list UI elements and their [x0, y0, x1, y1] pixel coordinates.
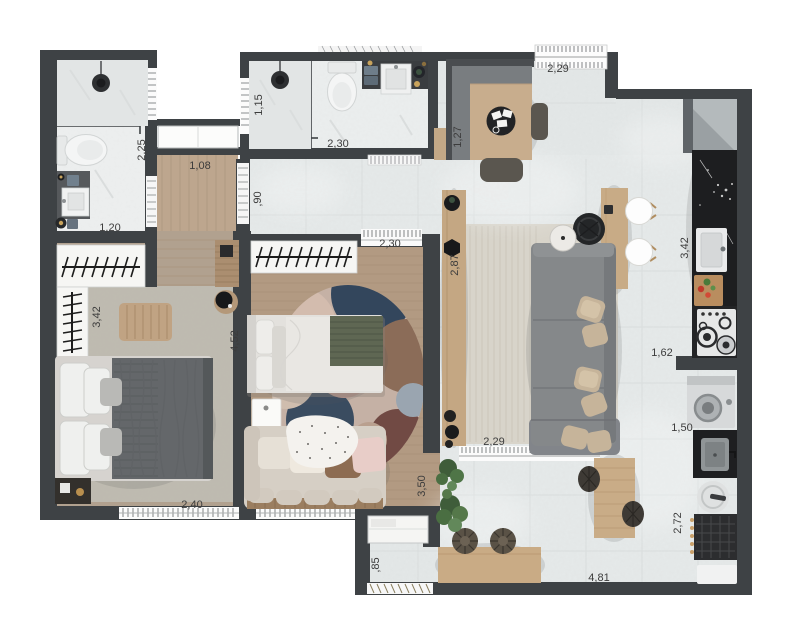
svg-text:,85: ,85	[370, 557, 382, 572]
svg-text:1,15: 1,15	[253, 94, 265, 115]
svg-text:1,50: 1,50	[671, 422, 692, 434]
svg-text:2,25: 2,25	[136, 139, 148, 160]
svg-text:2,72: 2,72	[672, 512, 684, 533]
svg-text:3,42: 3,42	[679, 237, 691, 258]
svg-text:4,81: 4,81	[588, 572, 609, 584]
svg-text:3,42: 3,42	[91, 306, 103, 327]
svg-text:2,30: 2,30	[327, 138, 348, 150]
svg-text:2,29: 2,29	[483, 436, 504, 448]
svg-text:,90: ,90	[252, 191, 264, 206]
svg-text:2,87: 2,87	[449, 254, 461, 275]
svg-text:1,62: 1,62	[651, 347, 672, 359]
svg-text:4,52: 4,52	[229, 330, 241, 351]
svg-text:1,27: 1,27	[452, 126, 464, 147]
svg-text:2,40: 2,40	[181, 499, 202, 511]
svg-text:1,20: 1,20	[99, 222, 120, 234]
svg-text:2,29: 2,29	[547, 63, 568, 75]
svg-text:3,50: 3,50	[416, 475, 428, 496]
svg-text:2,30: 2,30	[379, 238, 400, 250]
svg-text:1,08: 1,08	[189, 160, 210, 172]
